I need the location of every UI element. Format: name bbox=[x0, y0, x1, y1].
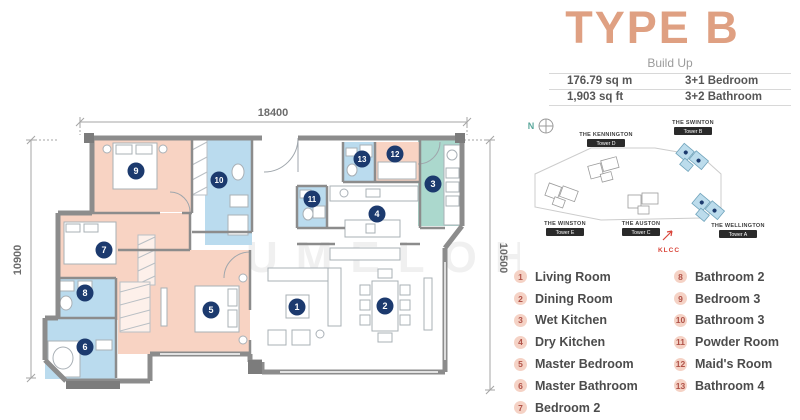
legend-number: 8 bbox=[674, 270, 687, 283]
svg-text:THE WINSTON: THE WINSTON bbox=[544, 221, 586, 227]
room-badge-11: 11 bbox=[304, 191, 321, 208]
buildup-area-sqft: 1,903 sq ft bbox=[549, 90, 685, 105]
svg-text:THE WELLINGTON: THE WELLINGTON bbox=[711, 223, 765, 229]
room-badge-3: 3 bbox=[425, 176, 442, 193]
floor-plan: UMELOH bbox=[0, 0, 520, 420]
legend-item-10: 10Bathroom 3 bbox=[674, 310, 800, 332]
tower-tower-d: THE KENNINGTONTower D bbox=[579, 132, 633, 185]
svg-text:8: 8 bbox=[82, 288, 87, 298]
svg-text:7: 7 bbox=[101, 245, 106, 255]
legend-item-12: 12Maid's Room bbox=[674, 353, 800, 375]
legend-item-2: 2Dining Room bbox=[514, 288, 666, 310]
compass-icon: N bbox=[528, 119, 553, 133]
legend-number: 12 bbox=[674, 358, 687, 371]
svg-text:THE AUSTON: THE AUSTON bbox=[622, 221, 660, 227]
svg-text:6: 6 bbox=[82, 342, 87, 352]
room-badge-8: 8 bbox=[77, 285, 94, 302]
legend-item-7: 7Bedroom 2 bbox=[514, 397, 666, 419]
dimension-top: 18400 bbox=[258, 107, 289, 119]
svg-text:Tower A: Tower A bbox=[729, 232, 748, 238]
legend-item-13: 13Bathroom 4 bbox=[674, 375, 800, 397]
room-badge-5: 5 bbox=[203, 302, 220, 319]
legend-number: 10 bbox=[674, 314, 687, 327]
svg-text:12: 12 bbox=[391, 150, 400, 159]
room-badge-10: 10 bbox=[211, 172, 228, 189]
svg-text:2: 2 bbox=[382, 301, 387, 311]
site-map: N THE KENNINGTONTower DTHE SWINTONTower … bbox=[505, 112, 800, 262]
legend-label: Bedroom 3 bbox=[687, 292, 760, 306]
tower-tower-b: THE SWINTONTower B bbox=[672, 120, 714, 177]
room-badge-7: 7 bbox=[96, 242, 113, 259]
floorplan-brochure: UMELOH bbox=[0, 0, 800, 420]
svg-text:THE KENNINGTON: THE KENNINGTON bbox=[579, 132, 633, 138]
buildup-bedroom: 3+1 Bedroom bbox=[685, 74, 791, 89]
svg-text:10: 10 bbox=[215, 176, 224, 185]
svg-text:5: 5 bbox=[208, 305, 213, 315]
legend-label: Dry Kitchen bbox=[527, 335, 605, 349]
svg-text:3: 3 bbox=[430, 179, 435, 189]
legend-label: Wet Kitchen bbox=[527, 313, 607, 327]
svg-text:9: 9 bbox=[133, 166, 138, 176]
tower-tower-c: THE AUSTONTower C bbox=[622, 193, 660, 236]
room-badge-4: 4 bbox=[369, 206, 386, 223]
tower-tower-e: THE WINSTONTower E bbox=[543, 181, 586, 236]
legend-label: Bathroom 2 bbox=[687, 270, 764, 284]
svg-text:Tower C: Tower C bbox=[631, 230, 650, 236]
legend-number: 7 bbox=[514, 401, 527, 414]
legend-label: Master Bedroom bbox=[527, 357, 634, 371]
room-badge-13: 13 bbox=[354, 151, 371, 168]
svg-text:4: 4 bbox=[374, 209, 379, 219]
room-badge-9: 9 bbox=[128, 163, 145, 180]
page-title: TYPE B bbox=[505, 0, 800, 56]
info-panel: TYPE B Build Up 176.79 sq m 3+1 Bedroom … bbox=[505, 0, 800, 420]
room-badge-1: 1 bbox=[289, 299, 306, 316]
legend-number: 1 bbox=[514, 270, 527, 283]
legend-label: Bathroom 4 bbox=[687, 379, 764, 393]
svg-text:Tower D: Tower D bbox=[596, 141, 615, 147]
legend-number: 2 bbox=[514, 292, 527, 305]
legend-item-1: 1Living Room bbox=[514, 266, 666, 288]
svg-text:Tower E: Tower E bbox=[556, 230, 575, 236]
legend-item-6: 6Master Bathroom bbox=[514, 375, 666, 397]
legend-item-4: 4Dry Kitchen bbox=[514, 331, 666, 353]
legend-label: Master Bathroom bbox=[527, 379, 638, 393]
room-badge-2: 2 bbox=[377, 298, 394, 315]
room-badge-6: 6 bbox=[77, 339, 94, 356]
legend-number: 6 bbox=[514, 379, 527, 392]
buildup-row: 1,903 sq ft 3+2 Bathroom bbox=[549, 89, 791, 105]
legend-item-3: 3Wet Kitchen bbox=[514, 310, 666, 332]
buildup-area-sqm: 176.79 sq m bbox=[549, 74, 685, 89]
buildup-row: 176.79 sq m 3+1 Bedroom bbox=[549, 74, 791, 89]
buildup-table: Build Up 176.79 sq m 3+1 Bedroom 1,903 s… bbox=[549, 56, 791, 106]
svg-text:Tower B: Tower B bbox=[684, 129, 703, 135]
legend-item-8: 8Bathroom 2 bbox=[674, 266, 800, 288]
svg-text:1: 1 bbox=[294, 302, 299, 312]
legend-item-9: 9Bedroom 3 bbox=[674, 288, 800, 310]
tower-tower-a: THE WELLINGTONTower A bbox=[688, 192, 765, 238]
legend-item-5: 5Master Bedroom bbox=[514, 353, 666, 375]
legend-label: Living Room bbox=[527, 270, 611, 284]
buildup-bathroom: 3+2 Bathroom bbox=[685, 90, 791, 105]
legend-label: Powder Room bbox=[687, 335, 779, 349]
buildup-label: Build Up bbox=[549, 56, 791, 73]
landmark-marker: KLCC bbox=[658, 231, 680, 254]
svg-text:13: 13 bbox=[358, 155, 367, 164]
legend-number: 4 bbox=[514, 336, 527, 349]
svg-text:THE SWINTON: THE SWINTON bbox=[672, 120, 714, 126]
legend-item-11: 11Powder Room bbox=[674, 331, 800, 353]
legend-number: 5 bbox=[514, 358, 527, 371]
legend-label: Maid's Room bbox=[687, 357, 772, 371]
legend-label: Bedroom 2 bbox=[527, 401, 600, 415]
legend-number: 11 bbox=[674, 336, 687, 349]
legend-label: Bathroom 3 bbox=[687, 313, 764, 327]
legend-label: Dining Room bbox=[527, 292, 613, 306]
svg-text:11: 11 bbox=[308, 195, 317, 204]
legend-number: 3 bbox=[514, 314, 527, 327]
room-badge-12: 12 bbox=[387, 146, 404, 163]
landmark-label: KLCC bbox=[658, 247, 680, 254]
dimension-left: 10900 bbox=[12, 245, 24, 276]
svg-text:N: N bbox=[528, 121, 535, 131]
legend-number: 9 bbox=[674, 292, 687, 305]
legend-number: 13 bbox=[674, 379, 687, 392]
